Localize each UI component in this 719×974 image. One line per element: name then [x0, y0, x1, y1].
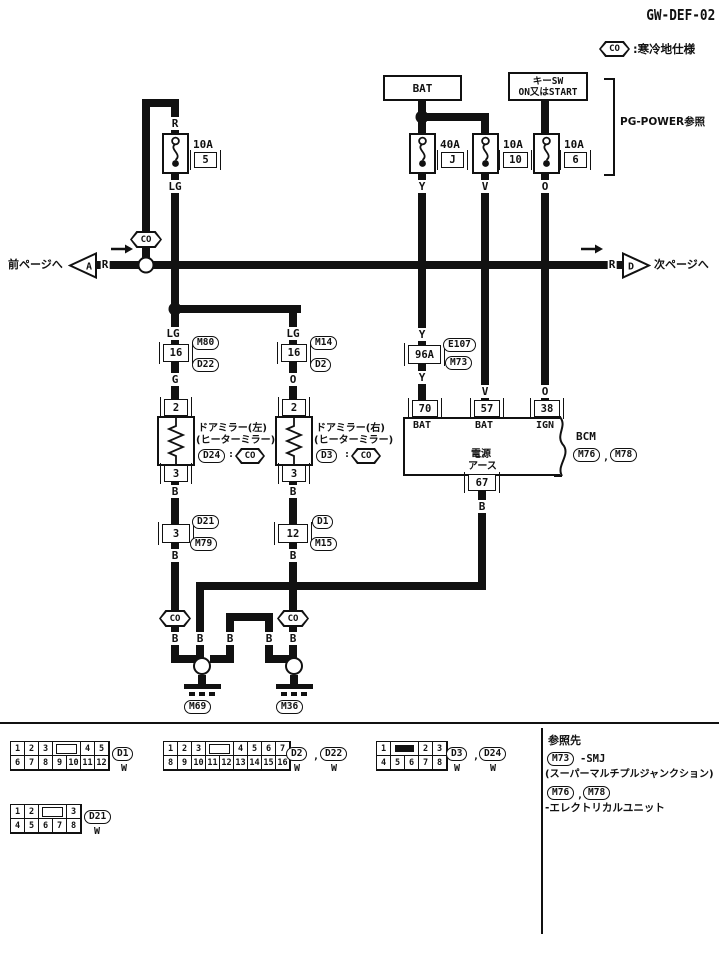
- cold-spec-diamond: CO: [235, 448, 265, 464]
- junction-dot: [416, 111, 429, 124]
- prev-page-id: A: [86, 262, 92, 273]
- connector-16-left: 16: [163, 344, 189, 362]
- page-title: GW-DEF-02: [646, 6, 715, 24]
- pin-cell: 12: [219, 755, 234, 770]
- wire-segment: [481, 173, 489, 402]
- wire-label: Y: [418, 328, 427, 341]
- pin-cell: 1: [376, 741, 391, 756]
- wire-label: B: [171, 485, 180, 498]
- battery-label: BAT: [413, 82, 433, 95]
- fuse-id: J: [449, 154, 455, 166]
- connector-id-m80: M80: [192, 336, 219, 350]
- connector-id-m15: M15: [310, 537, 337, 551]
- wire-label: R: [171, 117, 180, 130]
- connector-id-e107: E107: [443, 338, 476, 352]
- reference-unit: -エレクトリカルユニット: [545, 802, 665, 815]
- wire-label: R: [101, 258, 110, 271]
- ground-bar: [276, 684, 313, 689]
- pin-cell: 2: [24, 741, 39, 756]
- prev-page-text: 前ページへ: [8, 258, 63, 271]
- wire-label: B: [265, 632, 274, 645]
- pin-3-right: 3: [282, 465, 306, 482]
- mirror-right-label2: (ヒーターミラー): [314, 434, 393, 447]
- wire-label: B: [289, 632, 298, 645]
- pin-cell: 6: [38, 818, 53, 833]
- bcm-pin-67: 67: [468, 474, 496, 491]
- co-label: CO: [353, 450, 379, 462]
- connector-16-right: 16: [281, 344, 307, 362]
- wire-label: LG: [285, 327, 300, 340]
- pin-cell: 10: [66, 755, 81, 770]
- pin-cell: 3: [191, 741, 206, 756]
- connector-face-d3-d24: 12345678: [376, 741, 448, 771]
- connector-12: 12: [278, 524, 308, 543]
- connector-id-d1: D1: [312, 515, 333, 529]
- pin-cell: 8: [432, 755, 447, 770]
- pin-cell: 3: [432, 741, 447, 756]
- connector-id-d2: D2: [310, 358, 331, 372]
- pin-cell: 9: [52, 755, 67, 770]
- connector-color: W: [121, 763, 127, 774]
- wire-label: G: [171, 373, 180, 386]
- lock-slot: [38, 804, 67, 819]
- mirror-right-component: [275, 416, 313, 466]
- ground-id-m69: M69: [184, 700, 211, 714]
- wire-label: O: [289, 373, 298, 386]
- fuse-icon: [474, 135, 497, 172]
- wire-segment: [481, 113, 489, 133]
- fuse-rating: 10A: [503, 138, 523, 151]
- pin-cell: 5: [247, 741, 262, 756]
- section-divider-vertical: [541, 728, 543, 934]
- wire-segment: [210, 655, 234, 663]
- wire-segment: [171, 305, 301, 313]
- connector-face-d2-d22: 12345678910111213141516: [163, 741, 291, 771]
- wire-label: B: [171, 549, 180, 562]
- colon: :: [228, 449, 234, 460]
- pin-cell: 8: [38, 755, 53, 770]
- battery-box: BAT: [383, 75, 462, 101]
- fuse-rating: 10A: [564, 138, 584, 151]
- fuse-id-box: 5: [194, 152, 217, 168]
- wire-label: B: [289, 549, 298, 562]
- reference-smj-full: (スーパーマルチプルジャンクション): [545, 768, 714, 781]
- pin-cell: 1: [10, 741, 25, 756]
- resistor-icon: [159, 418, 193, 464]
- pin-cell: 4: [233, 741, 248, 756]
- next-page-text: 次ページへ: [654, 258, 709, 271]
- connector-color: W: [294, 763, 300, 774]
- fuse-icon: [411, 135, 434, 172]
- wire-label: B: [478, 500, 487, 513]
- pin-cell: 11: [205, 755, 220, 770]
- bcm-pin-57: 57: [474, 400, 500, 417]
- wire-segment: [541, 100, 549, 133]
- pin-cell: 9: [177, 755, 192, 770]
- next-page-triangle[interactable]: D: [622, 252, 651, 279]
- fuse-10a-10: [472, 133, 499, 174]
- pin-cell: 14: [247, 755, 262, 770]
- key-switch-box: キーSW ON又はSTART: [508, 72, 588, 101]
- wire-label: O: [541, 180, 550, 193]
- reference-id-m76: M76: [547, 786, 574, 800]
- wire-label: LG: [167, 180, 182, 193]
- pin-cell: 3: [38, 741, 53, 756]
- wire-segment: [196, 582, 486, 590]
- reference-heading: 参照先: [548, 734, 581, 747]
- connector-id-d22-face: D22: [320, 747, 347, 761]
- connector-num: 12: [287, 528, 300, 540]
- connector-color: W: [331, 763, 337, 774]
- connector-id-d22: D22: [192, 358, 219, 372]
- fuse-10a-5: [162, 133, 189, 174]
- wire-label: V: [481, 385, 490, 398]
- pin-num: 38: [541, 403, 554, 415]
- fuse-icon: [164, 135, 187, 172]
- wire-label: R: [608, 258, 617, 271]
- wire-segment: [541, 173, 549, 402]
- resistor-icon: [277, 418, 311, 464]
- cold-spec-diamond: CO: [351, 448, 381, 464]
- fuse-10a-6: [533, 133, 560, 174]
- pin-cell: 6: [261, 741, 276, 756]
- pin-cell: 12: [94, 755, 109, 770]
- connector-num: 16: [288, 347, 301, 359]
- fuse-40a-j: [409, 133, 436, 174]
- connector-96a: 96A: [408, 345, 441, 364]
- bcm-name: BCM: [576, 430, 596, 443]
- wire-label: Y: [418, 180, 427, 193]
- fuse-id-box: 6: [564, 152, 587, 168]
- section-divider-horizontal: [0, 722, 719, 724]
- legend-text: :寒冷地仕様: [633, 43, 695, 56]
- pin-cell: 5: [94, 741, 109, 756]
- wire-label: B: [226, 632, 235, 645]
- pin-cell: 8: [163, 755, 178, 770]
- bcm-pin-38: 38: [534, 400, 560, 417]
- pin-num: 2: [173, 402, 179, 414]
- pin-num: 3: [291, 468, 297, 480]
- pin-cell: 4: [376, 755, 391, 770]
- connector-num: 3: [173, 528, 179, 540]
- bcm-pin-func: IGN: [536, 420, 554, 431]
- connector-id-d3-face: D3: [446, 747, 467, 761]
- pin-cell: 2: [24, 804, 39, 819]
- pin-2-right: 2: [282, 399, 306, 416]
- pin-num: 3: [173, 468, 179, 480]
- ground-splice-m36: [285, 657, 303, 675]
- connector-num: 96A: [415, 349, 434, 361]
- pin-cell: 1: [10, 804, 25, 819]
- pg-power-bracket: [604, 78, 615, 176]
- reference-id-m73: M73: [547, 752, 574, 766]
- wire-segment: [418, 173, 426, 345]
- connector-id-d2-face: D2: [286, 747, 307, 761]
- fuse-rating: 40A: [440, 138, 460, 151]
- flow-arrow-icon: [580, 244, 604, 254]
- pin-cell: 4: [10, 818, 25, 833]
- mirror-left-label2: (ヒーターミラー): [196, 434, 275, 447]
- pin-cell: 10: [191, 755, 206, 770]
- pin-cell: 11: [80, 755, 95, 770]
- connector-id-d24-face: D24: [479, 747, 506, 761]
- ground-dashes: [189, 692, 216, 696]
- pin-cell: 8: [66, 818, 81, 833]
- lock-slot: [390, 741, 419, 756]
- pin-cell: 1: [163, 741, 178, 756]
- connector-id-m78: M78: [610, 448, 637, 462]
- colon: :: [344, 449, 350, 460]
- connector-id-d3: D3: [316, 449, 337, 463]
- pin-cell: 2: [177, 741, 192, 756]
- comma: ,: [603, 452, 609, 463]
- fuse-id: 10: [509, 154, 522, 166]
- fuse-id-box: J: [441, 152, 464, 168]
- wire-label: B: [171, 632, 180, 645]
- pin-cell: 2: [418, 741, 433, 756]
- pin-num: 2: [291, 402, 297, 414]
- bcm-pin-70: 70: [412, 400, 438, 417]
- next-page-id: D: [628, 262, 634, 273]
- co-label: CO: [132, 233, 160, 246]
- wire-label: Y: [418, 371, 427, 384]
- pin-cell: 5: [390, 755, 405, 770]
- bcm-pin-func: BAT: [475, 420, 493, 431]
- bcm-pin-func: BAT: [413, 420, 431, 431]
- wire-label: O: [541, 385, 550, 398]
- mirror-left-component: [157, 416, 195, 466]
- connector-id-m76: M76: [573, 448, 600, 462]
- ground-id-m36: M36: [276, 700, 303, 714]
- connector-color: W: [490, 763, 496, 774]
- co-label: CO: [601, 43, 628, 55]
- splice-circle: [138, 257, 155, 274]
- pin-cell: 4: [80, 741, 95, 756]
- pin-cell: 3: [66, 804, 81, 819]
- pin-cell: 13: [233, 755, 248, 770]
- pin-cell: 7: [52, 818, 67, 833]
- co-label: CO: [279, 612, 307, 625]
- connector-id-m79: M79: [190, 537, 217, 551]
- wire-label: B: [196, 632, 205, 645]
- ground-splice-m69: [193, 657, 211, 675]
- pin-cell: 6: [10, 755, 25, 770]
- fuse-id: 5: [202, 154, 208, 166]
- cold-spec-diamond-legend: CO: [599, 41, 630, 57]
- fuse-id: 6: [572, 154, 578, 166]
- co-label: CO: [237, 450, 263, 462]
- pin-cell: 5: [24, 818, 39, 833]
- pin-num: 57: [481, 403, 494, 415]
- wire-segment: [196, 582, 204, 659]
- pin-num: 70: [419, 403, 432, 415]
- connector-3: 3: [162, 524, 190, 543]
- flow-arrow-icon: [110, 244, 134, 254]
- fuse-id-box: 10: [503, 152, 528, 168]
- pin-num: 67: [476, 477, 489, 489]
- key-switch-line2: ON又はSTART: [518, 87, 577, 98]
- ground-bar: [184, 684, 221, 689]
- ground-dashes: [281, 692, 308, 696]
- wire-label: V: [481, 180, 490, 193]
- wire-segment: [171, 173, 179, 313]
- lock-slot: [205, 741, 234, 756]
- pin-2-left: 2: [164, 399, 188, 416]
- junction-dot: [169, 303, 182, 316]
- pg-power-ref: PG-POWER参照: [620, 116, 705, 129]
- wiring-diagram-page: GW-DEF-02 CO :寒冷地仕様 BAT キーSW ON又はSTART P…: [0, 0, 719, 974]
- pin-cell: 7: [24, 755, 39, 770]
- co-label: CO: [161, 612, 189, 625]
- pin-cell: 6: [404, 755, 419, 770]
- connector-color: W: [454, 763, 460, 774]
- pin-cell: 7: [418, 755, 433, 770]
- reference-smj: -SMJ: [580, 753, 605, 765]
- connector-id-d21: D21: [192, 515, 219, 529]
- connector-face-d21: 12345678: [10, 804, 82, 834]
- bcm-ground-label2: アース: [468, 460, 497, 473]
- connector-id-d21-face: D21: [84, 810, 111, 824]
- pin-cell: 15: [261, 755, 276, 770]
- connector-id-d24: D24: [198, 449, 225, 463]
- comma: ,: [313, 751, 319, 762]
- connector-num: 16: [170, 347, 183, 359]
- cold-spec-diamond: CO: [159, 610, 191, 627]
- wire-label: LG: [165, 327, 180, 340]
- prev-page-triangle[interactable]: A: [68, 252, 97, 279]
- wire-label: B: [289, 485, 298, 498]
- connector-id-d1-face: D1: [112, 747, 133, 761]
- fuse-icon: [535, 135, 558, 172]
- lock-slot: [52, 741, 81, 756]
- wire-segment: [418, 113, 489, 121]
- reference-id-m78: M78: [583, 786, 610, 800]
- fuse-rating: 10A: [193, 138, 213, 151]
- pin-3-left: 3: [164, 465, 188, 482]
- bcm-torn-edge: [554, 415, 572, 478]
- cold-spec-diamond: CO: [277, 610, 309, 627]
- connector-id-m73: M73: [445, 356, 472, 370]
- connector-face-d1: 123456789101112: [10, 741, 110, 771]
- connector-color: W: [94, 826, 100, 837]
- cold-spec-diamond: CO: [130, 231, 162, 248]
- connector-id-m14: M14: [310, 336, 337, 350]
- key-switch-line1: キーSW: [533, 76, 563, 87]
